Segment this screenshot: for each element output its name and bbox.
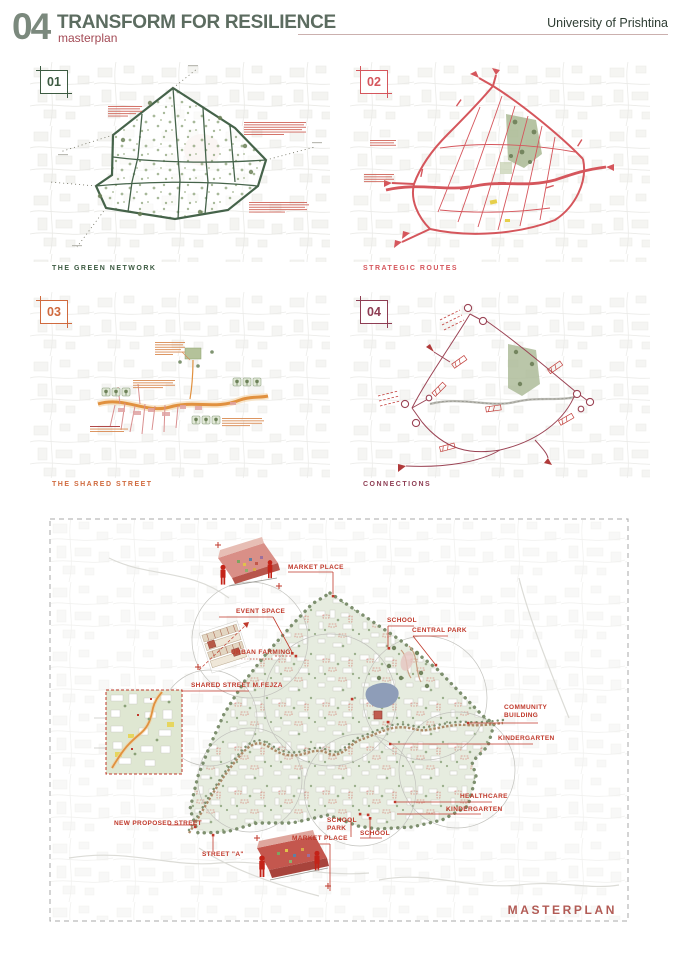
strategic-routes-map (350, 62, 650, 262)
panel-number: 02 (367, 75, 381, 89)
connections-map (350, 292, 650, 478)
panel-caption: THE GREEN NETWORK (52, 265, 156, 272)
panel-caption: STRATEGIC ROUTES (363, 265, 458, 272)
green-network-map (30, 62, 330, 262)
panel-caption: CONNECTIONS (363, 481, 431, 488)
label-shared-street-mfejza: SHARED STREET M.FEJZA (191, 682, 283, 689)
panel-number: 04 (367, 305, 381, 319)
panel-number: 01 (47, 75, 61, 89)
crop-mark-icon (356, 296, 365, 305)
section-number: 04 (12, 6, 49, 48)
label-school-park: SCHOOL PARK (327, 817, 357, 832)
institution-name: University of Prishtina (547, 16, 668, 30)
label-community-building: COMMUNITY BUILDING (504, 704, 547, 719)
panel-strategic-routes: 02 STRATEGIC ROUTES (350, 62, 650, 262)
masterplan-map (49, 518, 629, 922)
crop-mark-icon (383, 89, 392, 98)
crop-mark-icon (383, 319, 392, 328)
crop-mark-icon (36, 296, 45, 305)
panel-badge: 03 (40, 300, 68, 324)
label-line: PARK (327, 825, 357, 833)
inset-shared-street-map (94, 690, 182, 774)
label-market-place-bottom: MARKET PLACE (292, 835, 348, 842)
label-urban-farming: URBAN FARMING (231, 649, 291, 656)
panel-caption: THE SHARED STREET (52, 481, 153, 488)
page-subtitle: masterplan (58, 31, 117, 45)
masterplan-title: MASTERPLAN (508, 903, 617, 917)
panel-shared-street: 03 THE SHARED STREET (30, 292, 330, 478)
label-kindergarten-lower: KINDERGARTEN (446, 806, 503, 813)
poster-page: 04 TRANSFORM FOR RESILIENCE masterplan U… (0, 0, 678, 958)
label-line: BUILDING (504, 712, 547, 720)
label-event-space: EVENT SPACE (236, 608, 285, 615)
label-street-a: STREET "A" (202, 851, 244, 858)
shared-street-map (30, 292, 330, 478)
label-school-top: SCHOOL (387, 617, 417, 624)
crop-mark-icon (63, 319, 72, 328)
crop-mark-icon (36, 66, 45, 75)
panel-badge: 01 (40, 70, 68, 94)
label-central-park: CENTRAL PARK (412, 627, 467, 634)
label-school-bottom: SCHOOL (360, 830, 390, 837)
crop-mark-icon (356, 66, 365, 75)
panel-green-network: 01 THE GREEN NETWORK (30, 62, 330, 262)
label-market-place-top: MARKET PLACE (288, 564, 344, 571)
label-healthcare: HEALTHCARE (460, 793, 508, 800)
header-rule (298, 34, 668, 35)
label-line: SCHOOL (327, 817, 357, 825)
panel-number: 03 (47, 305, 61, 319)
panel-connections: 04 CONNECTIONS (350, 292, 650, 478)
label-new-proposed-street: NEW PROPOSED STREET (114, 820, 202, 827)
label-line: COMMUNITY (504, 704, 547, 712)
panel-badge: 02 (360, 70, 388, 94)
label-kindergarten-right: KINDERGARTEN (498, 735, 555, 742)
crop-mark-icon (63, 89, 72, 98)
community-building-footprint (374, 711, 382, 719)
panel-badge: 04 (360, 300, 388, 324)
